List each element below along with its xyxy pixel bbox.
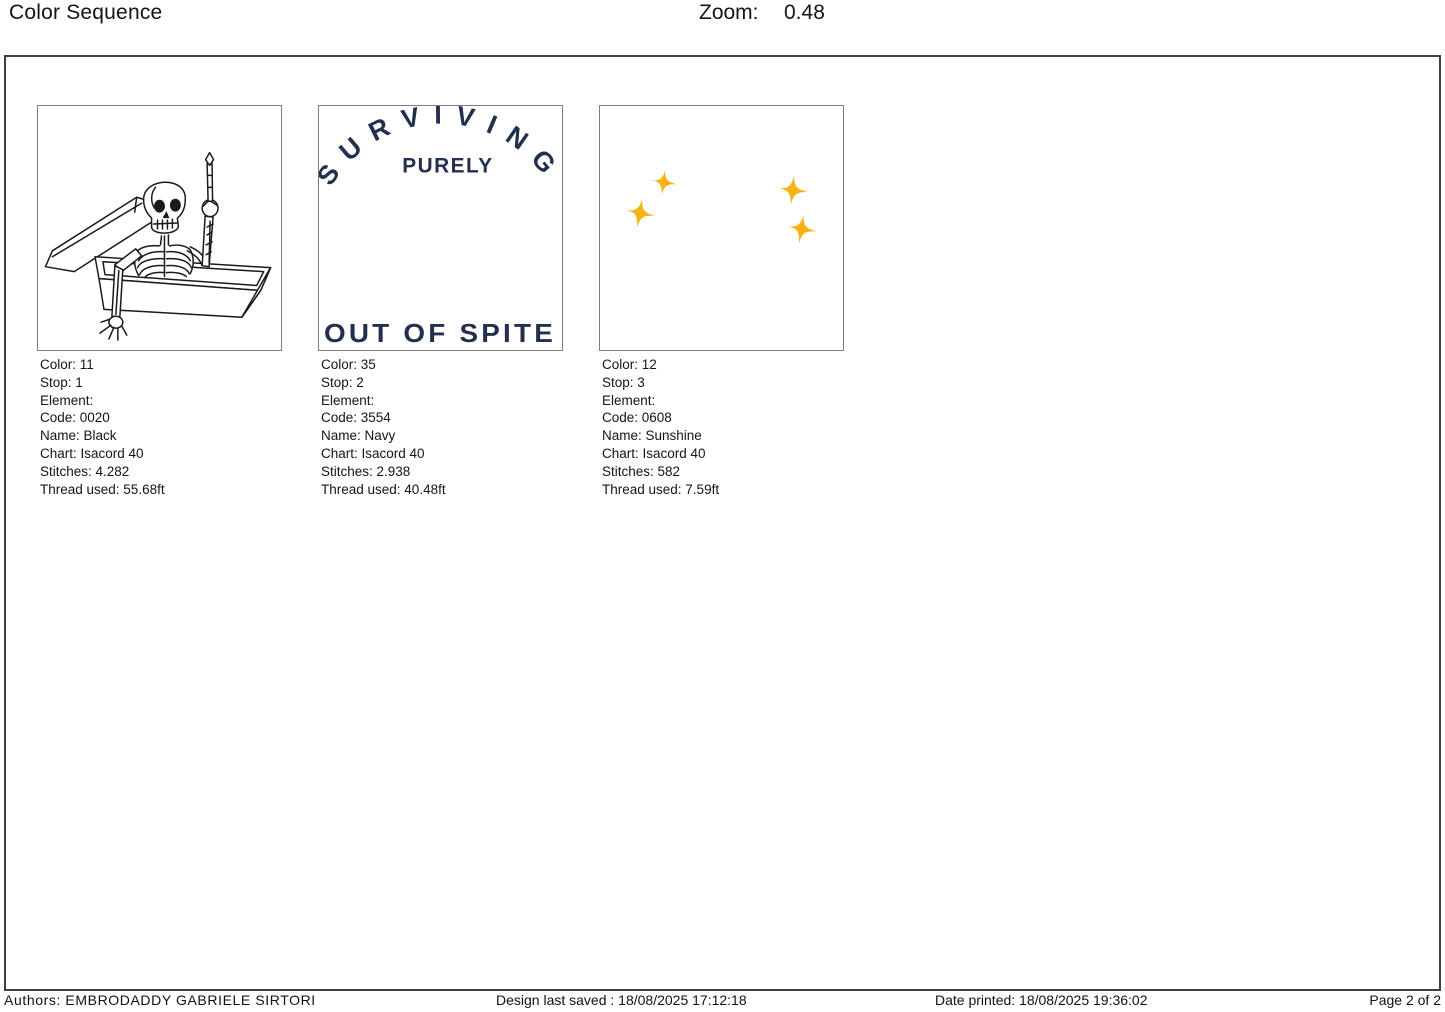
sparkle-stars-drawing <box>600 106 843 350</box>
info-name: Name: Navy <box>321 427 563 445</box>
color-sequence-sheet: Color: 11 Stop: 1 Element: Code: 0020 Na… <box>4 55 1441 991</box>
thread-info-2: Color: 35 Stop: 2 Element: Code: 3554 Na… <box>318 356 563 498</box>
info-name: Name: Sunshine <box>602 427 844 445</box>
info-stitches: Stitches: 582 <box>602 463 844 481</box>
info-name: Name: Black <box>40 427 282 445</box>
info-code: Code: 0608 <box>602 409 844 427</box>
info-code: Code: 0020 <box>40 409 282 427</box>
info-element: Element: <box>602 392 844 410</box>
sparkle-star-3 <box>775 174 809 206</box>
sequence-block-1: Color: 11 Stop: 1 Element: Code: 0020 Na… <box>37 105 282 498</box>
sparkle-star-4 <box>784 212 819 246</box>
info-color: Color: 35 <box>321 356 563 374</box>
info-chart: Chart: Isacord 40 <box>40 445 282 463</box>
zoom-value: 0.48 <box>784 1 825 25</box>
info-stop: Stop: 1 <box>40 374 282 392</box>
thumbnail-skeleton-coffin <box>37 105 282 351</box>
sequence-block-3: Color: 12 Stop: 3 Element: Code: 0608 Na… <box>599 105 844 498</box>
purely-text: PURELY <box>402 154 493 177</box>
info-element: Element: <box>40 392 282 410</box>
zoom-label: Zoom: <box>699 1 759 25</box>
info-stitches: Stitches: 4.282 <box>40 463 282 481</box>
footer-date-printed: Date printed: 18/08/2025 19:36:02 <box>935 992 1148 1008</box>
info-thread: Thread used: 55.68ft <box>40 481 282 499</box>
sequence-block-2: SURVIVING PURELY OUT OF SPITE Color: 35 … <box>318 105 563 498</box>
page-title: Color Sequence <box>9 1 162 25</box>
info-element: Element: <box>321 392 563 410</box>
info-thread: Thread used: 7.59ft <box>602 481 844 499</box>
skeleton-in-coffin-drawing <box>38 106 281 350</box>
info-color: Color: 12 <box>602 356 844 374</box>
info-thread: Thread used: 40.48ft <box>321 481 563 499</box>
footer: Authors: EMBRODADDY GABRIELE SIRTORI Des… <box>0 992 1445 1012</box>
info-stop: Stop: 2 <box>321 374 563 392</box>
footer-design-saved: Design last saved : 18/08/2025 17:12:18 <box>496 992 747 1008</box>
surviving-purely-out-of-spite-drawing: SURVIVING PURELY OUT OF SPITE <box>319 106 562 350</box>
color-sequence-page: Color Sequence Zoom: 0.48 <box>0 0 1445 1012</box>
footer-page-number: Page 2 of 2 <box>1369 992 1441 1008</box>
info-stop: Stop: 3 <box>602 374 844 392</box>
thread-info-3: Color: 12 Stop: 3 Element: Code: 0608 Na… <box>599 356 844 498</box>
thread-info-1: Color: 11 Stop: 1 Element: Code: 0020 Na… <box>37 356 282 498</box>
arched-text: SURVIVING <box>319 106 562 191</box>
info-stitches: Stitches: 2.938 <box>321 463 563 481</box>
thumbnail-lettering: SURVIVING PURELY OUT OF SPITE <box>318 105 563 351</box>
out-of-spite-text: OUT OF SPITE <box>324 320 556 348</box>
info-color: Color: 11 <box>40 356 282 374</box>
sparkle-star-1 <box>648 168 678 196</box>
info-chart: Chart: Isacord 40 <box>602 445 844 463</box>
info-code: Code: 3554 <box>321 409 563 427</box>
thumbnail-stars <box>599 105 844 351</box>
sparkle-star-2 <box>622 196 658 230</box>
footer-authors: Authors: EMBRODADDY GABRIELE SIRTORI <box>4 992 316 1008</box>
info-chart: Chart: Isacord 40 <box>321 445 563 463</box>
